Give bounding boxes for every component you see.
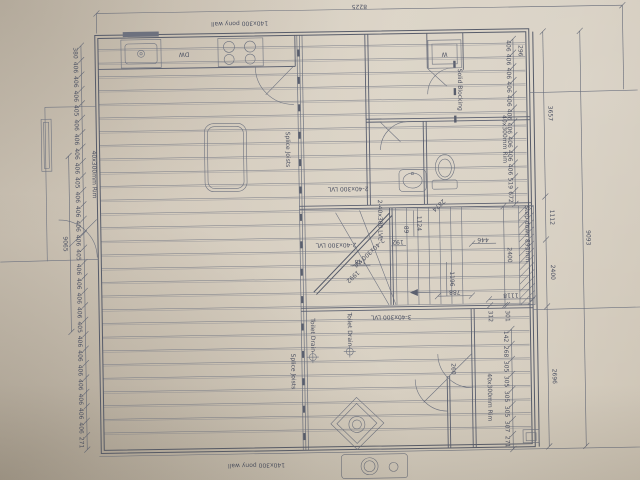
joist-line <box>103 358 530 365</box>
dim-chain-label: 406 <box>77 422 84 434</box>
dim-chain-label: 406 <box>74 235 81 247</box>
rim-lower-right-label: 40x300mm Rim <box>486 373 494 421</box>
joist-line <box>101 236 528 243</box>
dim-chain-label: 268 <box>502 346 509 358</box>
dim-1992: 1992 <box>344 269 360 285</box>
joist-line <box>100 154 527 161</box>
stair-direction-arrow <box>410 288 453 296</box>
kitchen: DW <box>121 30 266 193</box>
dim-2696: 2696 <box>551 369 558 385</box>
dim-chain-label: 406 <box>77 408 84 420</box>
dim-1118: 1118 <box>503 291 519 298</box>
solid-blocking-label: Solid Blocking <box>456 69 464 111</box>
rim-left-label: 40x300mm Rim <box>90 151 98 199</box>
joist-line <box>102 276 529 283</box>
step-down-strip: Step down 893mm <box>518 205 535 305</box>
washer: W <box>428 40 461 69</box>
dim-chain-label: 406 <box>75 264 82 276</box>
dim-chain-label: 406 <box>505 81 512 93</box>
lvl2-mid-label: 2-40x300 LVL <box>315 241 356 249</box>
joist-line <box>103 359 530 366</box>
joist-line <box>100 181 527 188</box>
pony-wall-bottom-label: 140x300 pony wall <box>228 461 285 469</box>
joist-line <box>101 264 528 271</box>
bathroom <box>399 154 458 191</box>
dim-chain-label: 406 <box>504 40 511 52</box>
corner-joist-spacing-chain: 142268305305305305307271 <box>502 326 516 452</box>
joist-line <box>101 235 528 242</box>
lvl2-bath-label: 2-40x300 LVL <box>327 185 368 193</box>
lvl3-label: 3-40x300 LVL <box>370 313 411 321</box>
dim-chain-label: 405 <box>73 177 80 189</box>
dim-chain-label: 305 <box>502 361 509 373</box>
dim-chain-label: 307 <box>503 421 510 433</box>
dim-chain-label: 405 <box>76 321 83 333</box>
joist-line <box>101 248 528 255</box>
dim-chain-label: 406 <box>72 91 79 103</box>
dim-chain-label: 405 <box>75 249 82 261</box>
dim-chain-label: 406 <box>74 206 81 218</box>
dim-chain-label: 406 <box>77 394 84 406</box>
joist-line <box>101 221 528 228</box>
floor-joists <box>98 43 531 443</box>
dim-2400-inner: 2400 <box>506 247 513 263</box>
toilet-drain-label: Toilet Drain <box>309 317 317 352</box>
dim-192: 192 <box>392 238 404 245</box>
dim-2874: 2874 <box>430 197 446 213</box>
joist-line <box>99 125 526 132</box>
dim-chain-label: 406 <box>75 278 82 290</box>
dim-3657: 3657 <box>546 106 553 122</box>
dim-chain-label: 406 <box>505 54 512 66</box>
dim-chain-label: 406 <box>73 134 80 146</box>
dim-chain-label: 406 <box>506 164 513 176</box>
dim-chain-label: 305 <box>503 376 510 388</box>
dim-chain-label: 406 <box>74 192 81 204</box>
step-down-label: Step down 893mm <box>523 205 531 262</box>
dim-chain-label: 406 <box>72 62 79 74</box>
dim-chain-label: 406 <box>505 95 512 107</box>
dim-chain-label: 406 <box>75 293 82 305</box>
joist-line <box>100 168 527 175</box>
joist-line <box>99 113 526 120</box>
dim-1124: 1124 <box>415 216 422 232</box>
dim-312: 312 <box>487 311 494 323</box>
dim-296: 296 <box>516 45 523 57</box>
floor-plan-photo: DW W <box>0 0 640 480</box>
joist-line <box>100 166 527 173</box>
dim-chain-label: 405 <box>72 105 79 117</box>
dim-chain-label: 406 <box>505 68 512 80</box>
joist-line <box>100 140 527 147</box>
joist-line <box>101 262 528 269</box>
lvl2-vertical-label: 2-40x300 LVL <box>376 200 384 241</box>
dim-chain-label: 519 <box>507 178 514 190</box>
joist-line <box>102 277 529 284</box>
washer-label: W <box>442 50 448 57</box>
blocking-mark <box>454 116 457 123</box>
dim-chain-label: 406 <box>76 336 83 348</box>
dim-9065: 9065 <box>61 236 68 252</box>
left-joist-spacing-chain: 3804064064064054064064064064054064064064… <box>71 43 90 453</box>
joist-line <box>99 139 526 146</box>
dim-chain-label: 672 <box>507 191 514 203</box>
dim-1112: 1112 <box>548 210 555 226</box>
dim-chain-label: 406 <box>77 379 84 391</box>
joist-line <box>103 373 530 380</box>
pony-wall-top-label: 140x300 pony wall <box>211 19 268 27</box>
dim-chain-label: 305 <box>503 406 510 418</box>
dim-89: 89 <box>402 226 409 234</box>
toilet-drain-label: Toilet Drain <box>346 312 354 347</box>
left-window <box>41 119 52 171</box>
joist-line <box>101 222 528 229</box>
dim-chain-label: 406 <box>76 350 83 362</box>
corner-box <box>523 430 539 443</box>
dim-chain-label: 406 <box>73 119 80 131</box>
joist-line <box>103 385 530 392</box>
dim-chain-label: 380 <box>71 47 78 59</box>
joist-line <box>104 428 531 435</box>
joist-line <box>102 291 529 298</box>
joist-line <box>103 372 530 379</box>
joist-line <box>101 250 528 257</box>
left-window-inner <box>44 122 50 168</box>
kitchen-cabinet <box>123 32 159 38</box>
joist-line <box>104 413 531 420</box>
joist-line <box>104 426 531 433</box>
dim-chain-label: 142 <box>502 331 509 343</box>
toilet-drain-markers: Toilet Drain Toilet Drain <box>306 312 356 364</box>
dim-chain-label: 271 <box>504 436 511 448</box>
dim-chain-label: 406 <box>73 148 80 160</box>
dim-9093: 9093 <box>584 230 591 246</box>
hall-door-arc <box>415 379 447 411</box>
corner-sink <box>330 397 384 450</box>
joist-line <box>101 209 528 216</box>
dim-chain-label: 406 <box>76 307 83 319</box>
joist-line <box>104 399 531 406</box>
dim-chain-label: 406 <box>74 220 81 232</box>
dim-301: 301 <box>504 310 511 322</box>
rim-right-label: 40x300mm Rim <box>501 115 509 163</box>
splice-joists-lower-label: Splice Joists <box>289 354 297 390</box>
joist-line <box>101 207 528 214</box>
dim-chain-label: 406 <box>72 76 79 88</box>
joist-line <box>103 387 530 394</box>
overall-width-dim: 8225 <box>351 3 367 10</box>
dim-chain-label: 406 <box>73 163 80 175</box>
joist-line <box>100 180 527 187</box>
dim-chain-label: 271 <box>78 437 85 449</box>
joist-line <box>100 195 527 202</box>
joist-line <box>104 401 531 408</box>
dim-chain-label: 305 <box>503 391 510 403</box>
joist-line <box>99 127 526 134</box>
blocking-mark <box>454 88 457 95</box>
bathroom-sink <box>399 169 426 191</box>
joist-line <box>104 414 531 421</box>
joist-line <box>100 193 527 200</box>
dim-446: 446 <box>477 236 489 243</box>
dim-2400: 2400 <box>549 265 556 281</box>
dim-chain-label: 406 <box>76 365 83 377</box>
dishwasher-label: DW <box>179 51 190 58</box>
floor-plan-drawing: DW W <box>0 0 640 480</box>
dim-1196: 1196 <box>448 271 455 287</box>
dim-260: 260 <box>449 363 456 375</box>
joist-line <box>100 152 527 159</box>
top-dimension: 8225 <box>93 0 626 98</box>
blocking-mark <box>453 61 456 68</box>
toilet <box>432 154 458 189</box>
splice-joists-upper-label: Splice Joists <box>284 132 292 168</box>
laundry-tub-below <box>341 454 407 479</box>
dim-788: 788 <box>449 288 461 295</box>
splice-bearing-line <box>297 35 309 450</box>
joist-line <box>99 111 526 118</box>
